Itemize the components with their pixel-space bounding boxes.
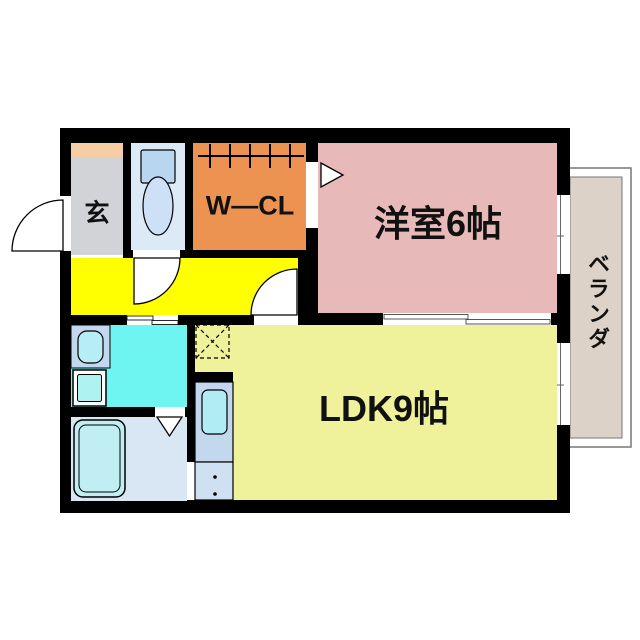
slider-panel (152, 321, 178, 325)
ldk-label: LDK9帖 (319, 391, 449, 427)
toilet-bowl (143, 177, 173, 235)
cabinet-knob (213, 475, 217, 479)
entrance-step-line (71, 255, 123, 258)
toilet-door-opening (133, 250, 180, 258)
entrance-swing-door-icon (12, 200, 63, 251)
window-glass (557, 195, 570, 274)
washing-machine-icon (73, 370, 106, 406)
ldk-door-opening (254, 315, 298, 325)
washer-inner (78, 375, 102, 402)
closet-opening (306, 162, 318, 228)
bath-door-opening (155, 407, 185, 417)
kitchen-stub-wall (187, 372, 233, 382)
toilet-icon (141, 150, 175, 235)
entrance-label: 玄 (84, 202, 109, 227)
bathtub-outer (74, 420, 125, 497)
window-glass (557, 343, 570, 425)
kitchen-sink-icon (202, 390, 227, 434)
slider-panel (384, 315, 468, 320)
kitchen-unit (195, 382, 233, 500)
floor-plan: 玄 W—CL 洋室6帖 LDK9帖 ベランダ (0, 0, 640, 640)
entrance-cabinet (71, 143, 123, 157)
slider-panel (466, 320, 550, 325)
vanity-basin (78, 331, 103, 363)
veranda-label: ベランダ (586, 252, 608, 352)
slider-panel (127, 316, 153, 320)
vanity-icon (71, 325, 110, 368)
western-room-label: 洋室6帖 (374, 206, 502, 242)
window-ldk (557, 343, 570, 425)
bathtub-icon (74, 420, 125, 497)
cabinet-knob (213, 492, 217, 496)
walk-in-closet-label: W—CL (206, 193, 294, 220)
floor-plan-drawing (0, 0, 640, 640)
window-western-room (557, 195, 570, 274)
kitchen-wall-gap (187, 462, 195, 500)
